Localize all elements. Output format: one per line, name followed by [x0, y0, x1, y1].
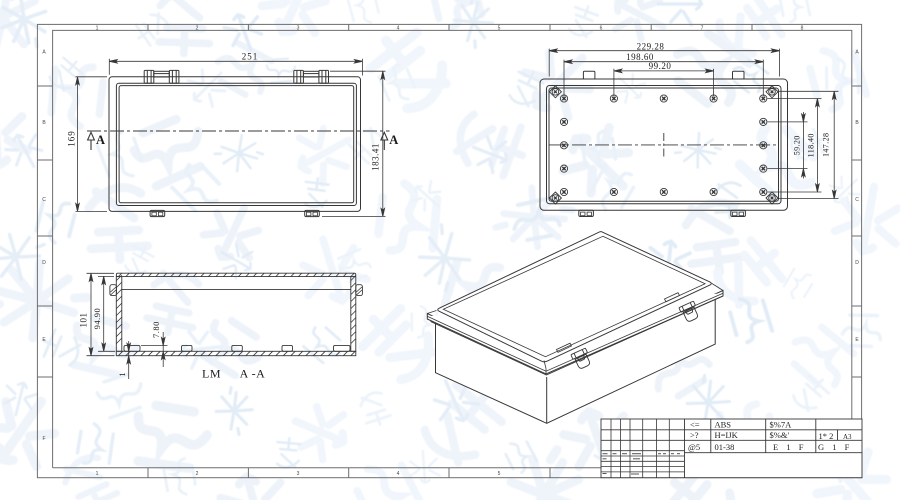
svg-text:6: 6 [600, 26, 603, 32]
svg-text:1: 1 [96, 26, 99, 32]
svg-text:$%7A: $%7A [770, 420, 793, 430]
svg-text:C: C [855, 197, 859, 203]
svg-text:118.40: 118.40 [807, 133, 816, 157]
svg-text:251: 251 [242, 51, 259, 61]
svg-text:1: 1 [96, 471, 99, 477]
svg-text:4: 4 [397, 471, 400, 477]
svg-text:G 1 F: G 1 F [818, 442, 852, 452]
svg-text:>?: >? [690, 430, 699, 440]
svg-text:3: 3 [297, 471, 300, 477]
svg-text:E 1 F: E 1 F [773, 442, 806, 452]
svg-text:169: 169 [66, 130, 76, 147]
svg-text:A3: A3 [843, 433, 852, 441]
svg-text:59.20: 59.20 [792, 135, 801, 155]
svg-text:C: C [42, 197, 46, 203]
svg-text:99.20: 99.20 [649, 61, 672, 71]
svg-text:A: A [389, 133, 398, 147]
svg-text:A -A: A -A [240, 367, 266, 381]
svg-text:D: D [42, 260, 46, 266]
svg-text:ABS: ABS [715, 420, 732, 430]
svg-text:1: 1 [117, 372, 127, 376]
svg-text:4: 4 [397, 26, 400, 32]
svg-text:F: F [42, 436, 45, 442]
svg-text:2: 2 [196, 471, 199, 477]
svg-text:01-38: 01-38 [715, 442, 735, 452]
svg-text:5: 5 [498, 26, 501, 32]
svg-text:183.41: 183.41 [371, 143, 381, 171]
svg-text:5: 5 [498, 471, 501, 477]
svg-text:7: 7 [701, 26, 704, 32]
svg-text:1* 2: 1* 2 [819, 431, 834, 441]
svg-text:A: A [96, 133, 105, 147]
svg-text:94.90: 94.90 [92, 308, 102, 330]
svg-text:@5: @5 [688, 442, 700, 452]
svg-text:<=: <= [690, 420, 700, 430]
svg-text:H=IJK: H=IJK [715, 430, 739, 440]
svg-text:8: 8 [801, 26, 804, 32]
svg-text:D: D [855, 260, 859, 266]
svg-text:229.28: 229.28 [637, 41, 665, 51]
svg-text:101: 101 [78, 313, 88, 328]
svg-text:2: 2 [196, 26, 199, 32]
svg-text:3: 3 [297, 26, 300, 32]
svg-text:147.28: 147.28 [822, 133, 831, 157]
svg-text:7.80: 7.80 [151, 321, 161, 338]
svg-text:LM: LM [202, 367, 221, 381]
svg-text:$%&': $%&' [770, 430, 790, 440]
